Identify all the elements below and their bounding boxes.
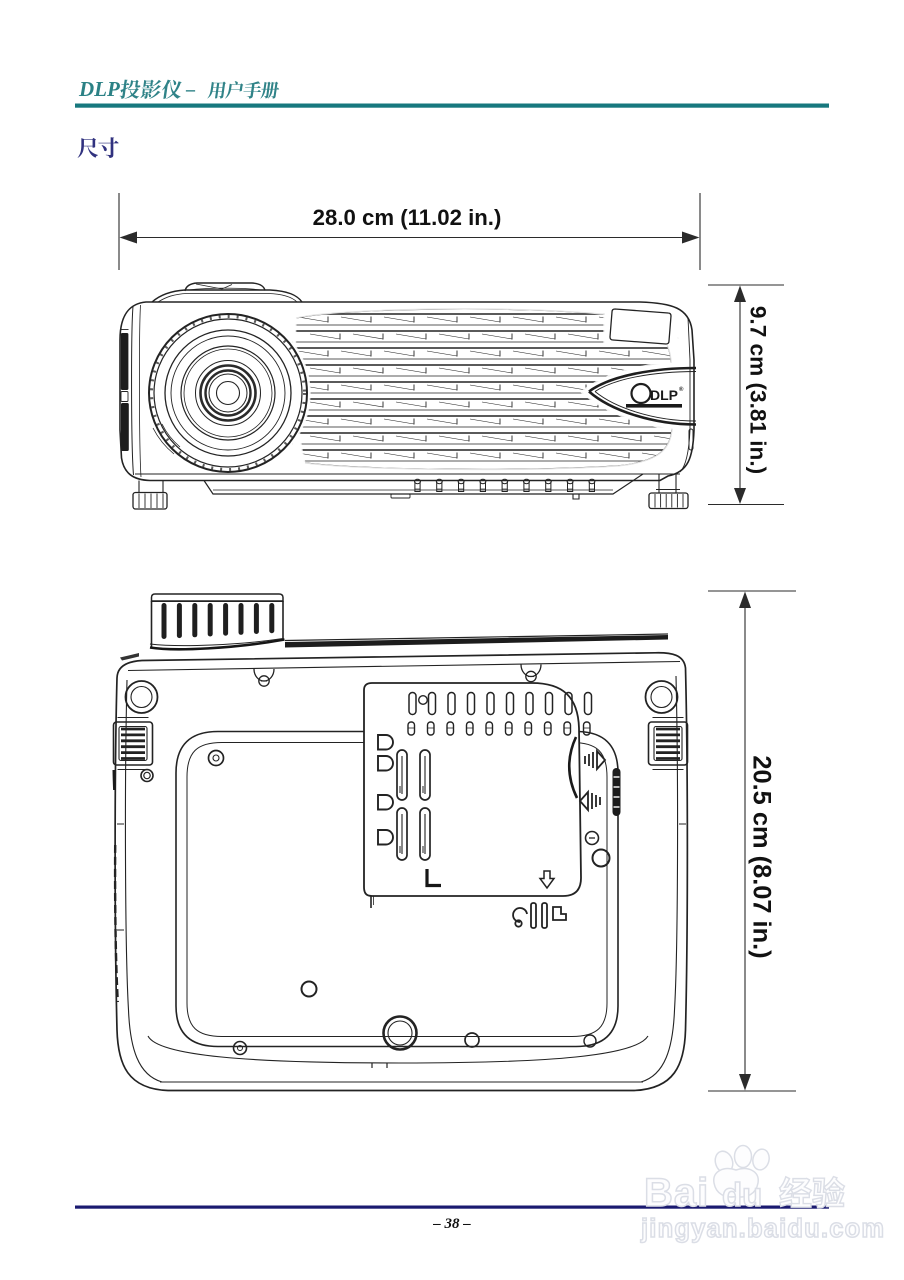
svg-text:DLP: DLP xyxy=(78,77,120,101)
svg-text:28.0 cm (11.02 in.): 28.0 cm (11.02 in.) xyxy=(313,205,502,230)
svg-text:–: – xyxy=(185,79,196,99)
svg-text:9.7 cm (3.81 in.): 9.7 cm (3.81 in.) xyxy=(746,306,771,474)
svg-text:DLP: DLP xyxy=(650,387,678,403)
svg-text:jingyan.baidu.com: jingyan.baidu.com xyxy=(640,1215,885,1243)
svg-text:®: ® xyxy=(679,386,684,393)
svg-text:Bai: Bai xyxy=(644,1171,709,1215)
svg-text:du: du xyxy=(722,1176,762,1213)
svg-text:– 38 –: – 38 – xyxy=(432,1216,471,1232)
svg-text:20.5 cm (8.07 in.): 20.5 cm (8.07 in.) xyxy=(748,755,776,958)
